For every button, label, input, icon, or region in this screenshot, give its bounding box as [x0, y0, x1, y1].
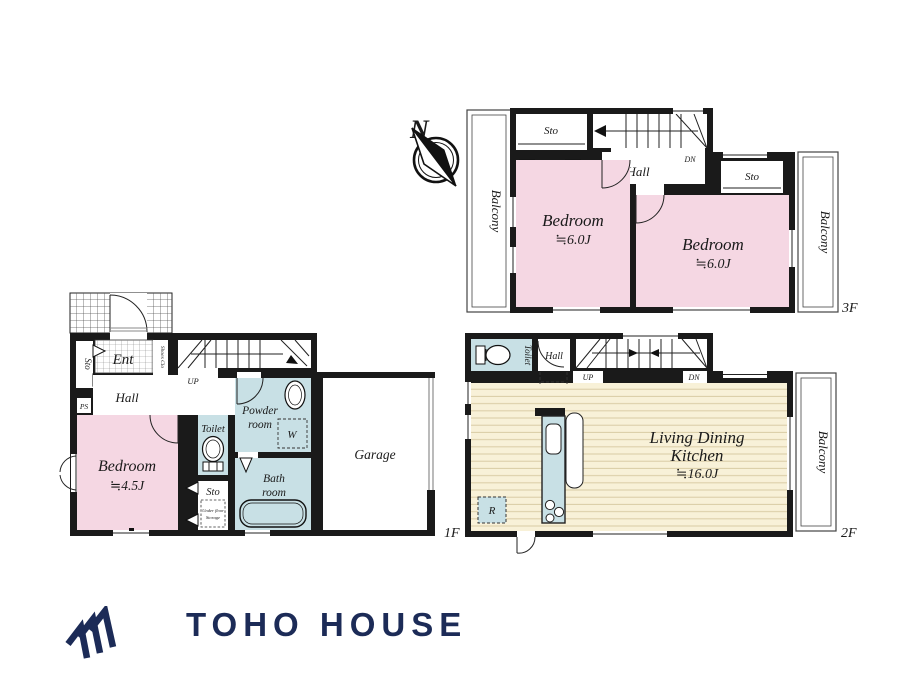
ldk-size: ≒16.0J	[676, 467, 719, 482]
underfloor-storage-line1: Under floor	[202, 508, 224, 513]
up-2f-label: UP	[583, 373, 594, 382]
floor-plan-2f: Balcony Living Dining Kitchen ≒16.0J Toi…	[460, 325, 858, 557]
garage-label: Garage	[354, 447, 395, 462]
floor-plan-3f: Balcony Balcony Hall DN Sto	[460, 100, 858, 325]
hall-1f-label: Hall	[114, 390, 139, 405]
sink-icon	[285, 381, 305, 409]
pipe-space-1f: PS	[77, 398, 91, 413]
toilet-2f: Toilet	[471, 339, 533, 371]
toilet-1f: Toilet	[198, 409, 228, 475]
bedroom-left-3f-size: ≒6.0J	[555, 233, 591, 248]
sink-icon	[546, 424, 561, 454]
dn-2f-label: DN	[687, 373, 700, 382]
entrance-label: Ent	[112, 352, 135, 368]
garage-opening	[427, 378, 435, 490]
pipe-space-label: PS	[79, 402, 89, 411]
door-bottom-2f	[517, 531, 535, 553]
staircase-3f	[593, 114, 707, 148]
bedroom-right-3f-name: Bedroom	[682, 235, 744, 254]
underfloor-storage-line2: Storage	[206, 515, 220, 520]
fridge-space-2f: R	[478, 497, 506, 523]
balcony-left-3f-label: Balcony	[489, 190, 504, 233]
bedroom-left-3f: Bedroom ≒6.0J	[516, 160, 630, 307]
storage-lower-label: Sto	[206, 487, 219, 498]
toilet-1f-label: Toilet	[201, 424, 226, 435]
floor-label-3f: 3F	[841, 301, 858, 316]
storage-left-3f-label: Sto	[544, 125, 559, 137]
powder-room-line2: room	[248, 419, 272, 431]
fridge-label: R	[488, 505, 496, 517]
powder-room-1f: Powder room W	[235, 372, 311, 452]
balcony-left-3f: Balcony	[467, 110, 511, 312]
ldk-name-line1: Living Dining	[649, 428, 745, 447]
floor-plan-1f: Ent Shoes Clo Sto PS Hall UP	[55, 278, 460, 550]
balcony-right-3f-label: Balcony	[818, 211, 833, 254]
underfloor-storage-box	[201, 500, 225, 527]
washer-label: W	[287, 429, 297, 441]
bedroom-left-3f-name: Bedroom	[542, 211, 604, 230]
shoes-closet-1f: Shoes Clo	[153, 340, 168, 375]
north-arrow-icon	[412, 128, 458, 186]
floor-label-2f: 2F	[841, 526, 857, 541]
ldk-2f: Living Dining Kitchen ≒16.0J	[471, 383, 787, 531]
up-1f-label: UP	[187, 376, 198, 386]
dn-3f-label: DN	[683, 155, 696, 164]
brand-name: TOHO HOUSE	[186, 606, 467, 644]
storage-upper-label: Sto	[83, 358, 93, 370]
garage-1f: Garage	[323, 378, 435, 530]
powder-room-line1: Powder	[241, 405, 278, 417]
brand-mark-icon	[64, 606, 122, 662]
toilet-2f-label: Toilet	[523, 345, 533, 366]
bedroom-1f-name: Bedroom	[98, 458, 156, 475]
bath-room-line1: Bath	[263, 473, 285, 485]
entrance-porch	[70, 293, 172, 333]
bedroom-right-3f-size: ≒6.0J	[695, 257, 731, 272]
bedroom-1f-size: ≒4.5J	[110, 478, 145, 493]
balcony-2f: Balcony	[796, 373, 836, 531]
toilet-icon	[203, 437, 224, 472]
staircase-1f	[178, 340, 311, 368]
casement-window-icon	[60, 454, 77, 492]
bath-room-1f: Bath room	[235, 452, 311, 530]
bath-room-line2: room	[262, 487, 286, 499]
ldk-name-line2: Kitchen	[670, 446, 724, 465]
storage-right-3f-label: Sto	[745, 171, 760, 183]
floorplan-sheet: N Balcony Balcony	[0, 0, 904, 678]
bedroom-1f: Bedroom ≒4.5J	[60, 409, 178, 530]
shoes-closet-label: Shoes Clo	[159, 346, 165, 368]
floor-label-1f: 1F	[444, 526, 460, 541]
hall-1f: Hall UP	[93, 368, 235, 415]
toilet-icon	[476, 346, 510, 365]
balcony-2f-label: Balcony	[816, 431, 831, 474]
balcony-right-3f: Balcony	[798, 152, 838, 312]
